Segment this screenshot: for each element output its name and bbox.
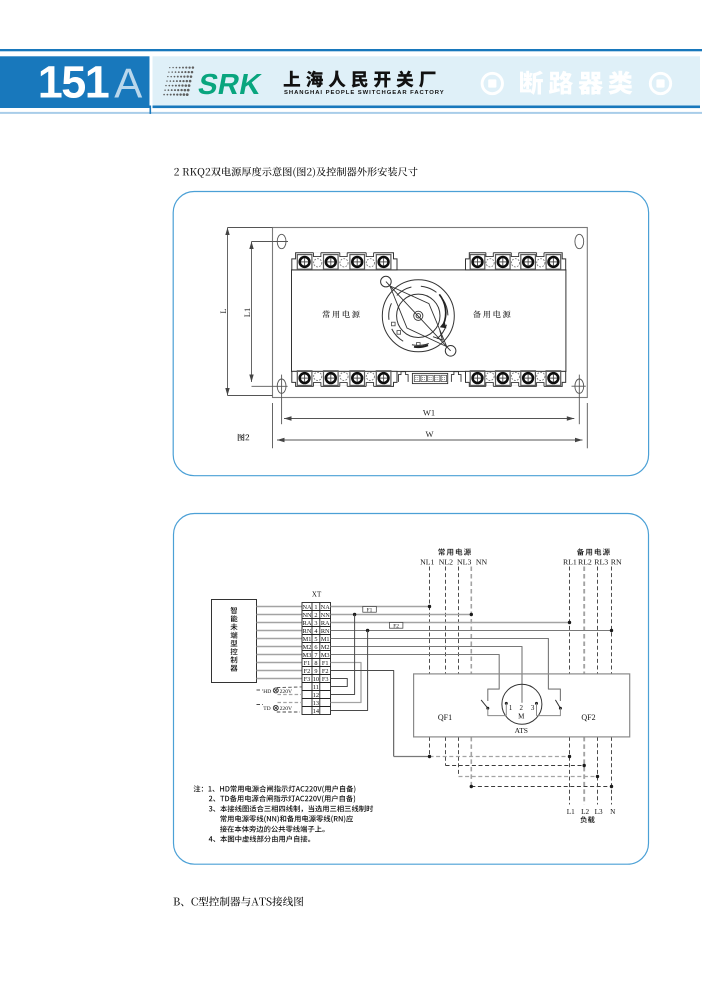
- svg-text:9: 9: [314, 668, 317, 675]
- svg-text:NA: NA: [321, 604, 331, 611]
- svg-text:F2: F2: [393, 623, 399, 629]
- svg-text:13: 13: [313, 700, 319, 707]
- svg-text:QF1: QF1: [438, 713, 452, 722]
- svg-text:M2: M2: [321, 644, 330, 651]
- svg-text:W1: W1: [423, 408, 435, 418]
- svg-text:W: W: [425, 429, 433, 439]
- svg-text:RA: RA: [303, 620, 312, 627]
- svg-text:L: L: [218, 308, 228, 313]
- svg-text:F3: F3: [304, 676, 311, 683]
- svg-text:F2: F2: [322, 668, 329, 675]
- svg-text:QF2: QF2: [581, 713, 595, 722]
- svg-text:M3: M3: [321, 652, 330, 659]
- svg-text:M1: M1: [321, 636, 330, 643]
- svg-text:151: 151: [38, 57, 109, 108]
- svg-text:L1: L1: [242, 308, 252, 317]
- svg-text:HD: HD: [263, 689, 271, 695]
- svg-text:ATS: ATS: [515, 726, 528, 735]
- svg-text:14: 14: [313, 708, 320, 715]
- svg-text:1: 1: [314, 604, 317, 611]
- svg-text:SHANGHAI PEOPLE SWITCHGEAR FAC: SHANGHAI PEOPLE SWITCHGEAR FACTORY: [284, 90, 445, 96]
- svg-text:RN: RN: [321, 628, 330, 635]
- svg-text:M3: M3: [303, 652, 312, 659]
- svg-text:NN: NN: [302, 612, 312, 619]
- svg-text:F2: F2: [304, 668, 311, 675]
- svg-text:2: 2: [314, 612, 317, 619]
- svg-text:F3: F3: [322, 676, 329, 683]
- svg-text:RA: RA: [321, 620, 330, 627]
- svg-text:M2: M2: [303, 644, 312, 651]
- svg-text:NN: NN: [321, 612, 331, 619]
- svg-text:M1: M1: [303, 636, 312, 643]
- svg-text:8: 8: [314, 660, 317, 667]
- svg-text:7: 7: [314, 652, 317, 659]
- svg-text:F1: F1: [322, 660, 329, 667]
- svg-text:3: 3: [314, 620, 317, 627]
- svg-text:F1: F1: [304, 660, 311, 667]
- svg-text:10: 10: [313, 676, 319, 683]
- svg-text:A: A: [114, 60, 142, 107]
- svg-text:11: 11: [313, 684, 319, 691]
- svg-text:RN: RN: [303, 628, 312, 635]
- svg-text:SRK: SRK: [195, 69, 264, 101]
- svg-text:6: 6: [314, 644, 317, 651]
- svg-text:F1: F1: [367, 607, 373, 613]
- svg-text:220V: 220V: [280, 706, 292, 712]
- svg-text:5: 5: [314, 636, 317, 643]
- svg-text:XT: XT: [312, 590, 322, 598]
- svg-text:NA: NA: [302, 604, 312, 611]
- svg-text:TD: TD: [263, 706, 270, 712]
- svg-text:12: 12: [313, 692, 319, 699]
